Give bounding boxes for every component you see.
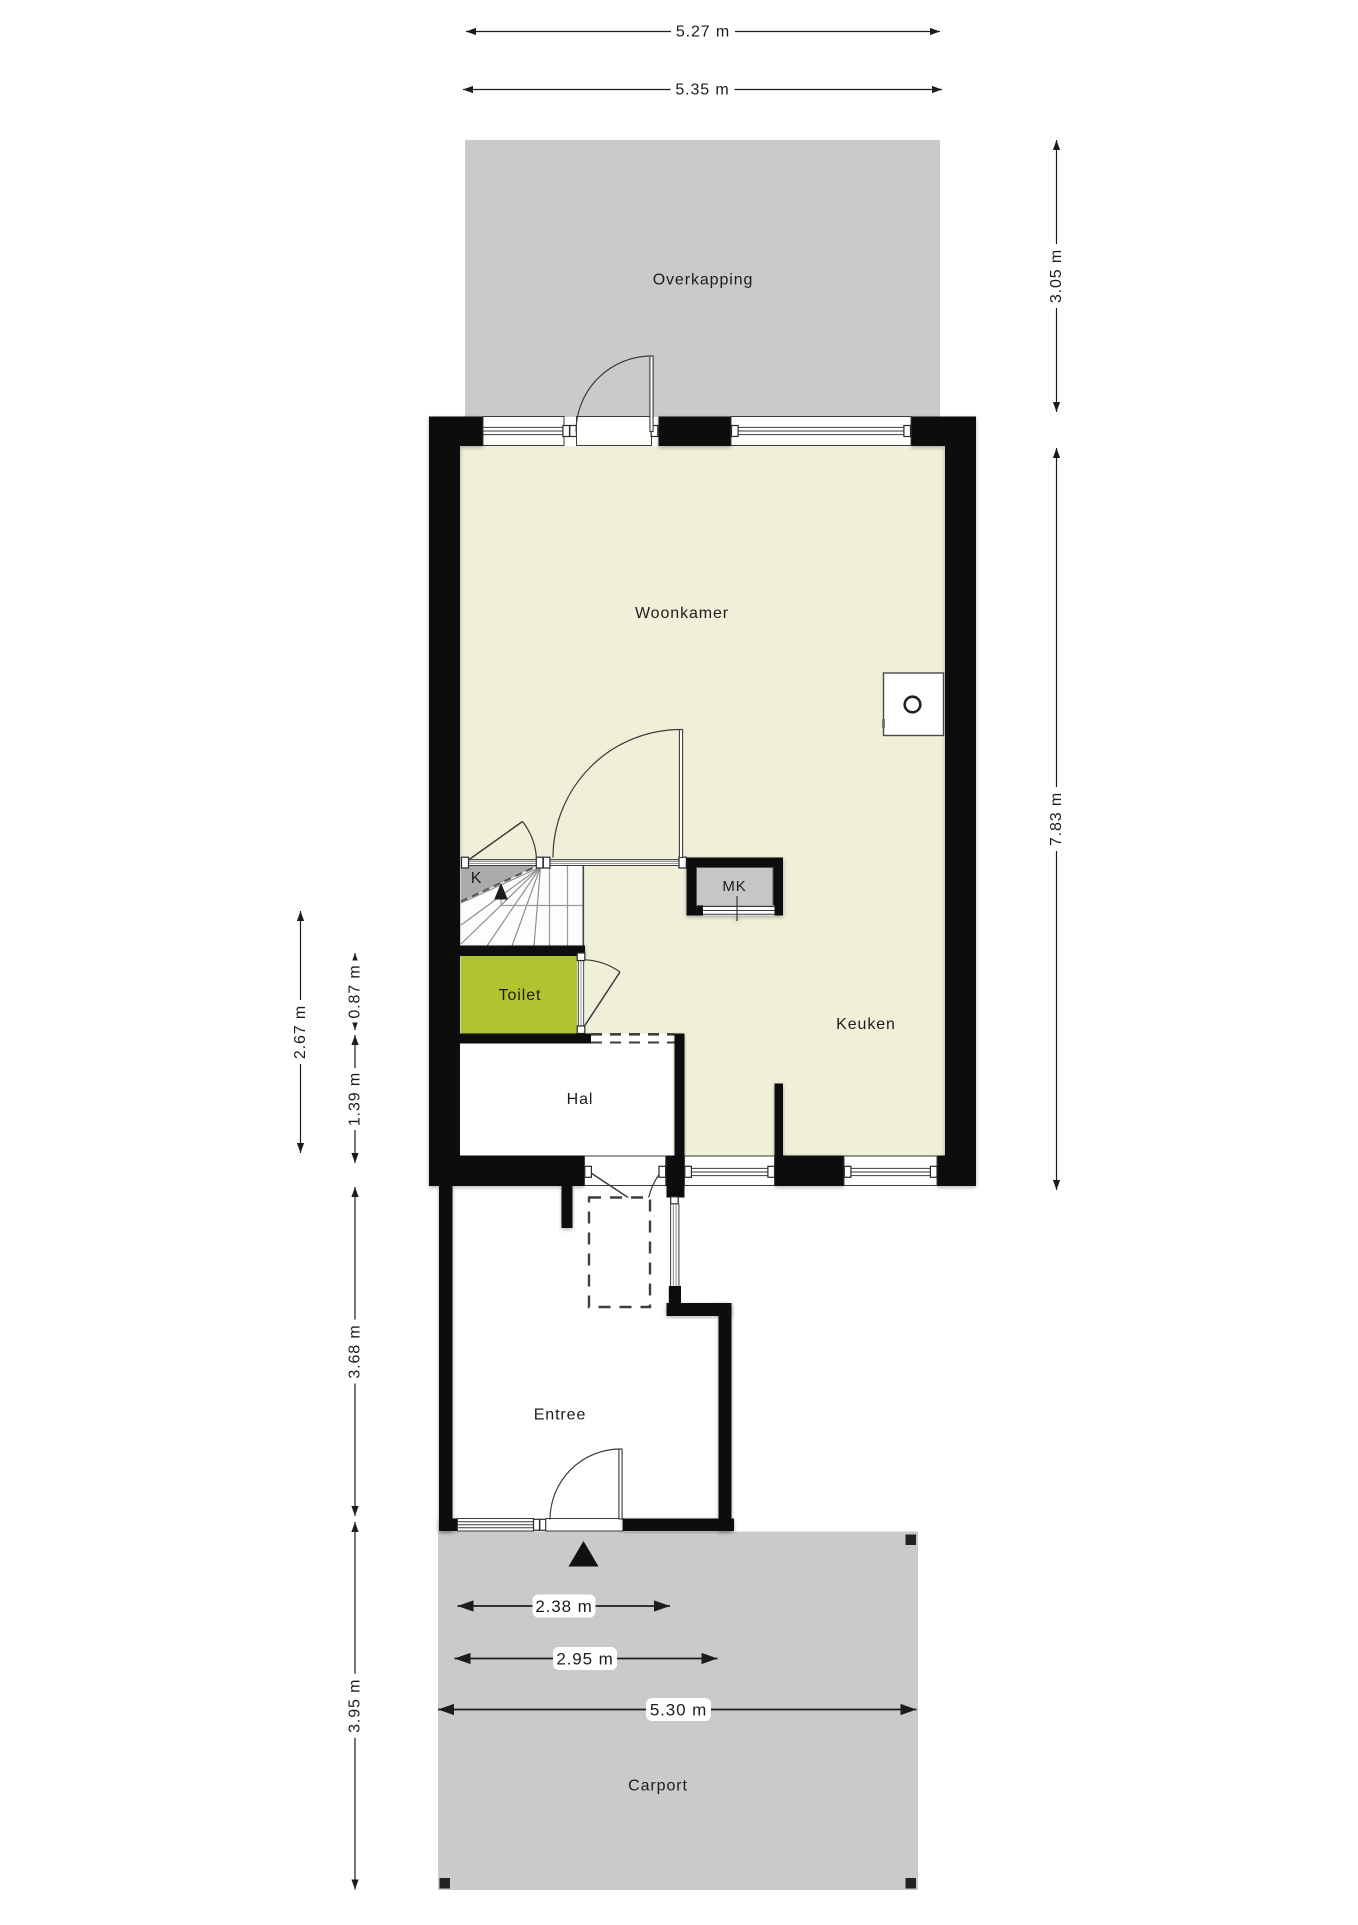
svg-text:Keuken: Keuken bbox=[836, 1016, 896, 1033]
svg-text:3.68 m: 3.68 m bbox=[347, 1324, 364, 1378]
svg-text:2.95 m: 2.95 m bbox=[556, 1650, 613, 1669]
svg-text:Hal: Hal bbox=[567, 1091, 594, 1108]
svg-text:5.35 m: 5.35 m bbox=[675, 82, 729, 99]
svg-text:1.39 m: 1.39 m bbox=[347, 1072, 364, 1126]
svg-text:3.95 m: 3.95 m bbox=[347, 1679, 364, 1733]
svg-text:3.05 m: 3.05 m bbox=[1048, 249, 1065, 303]
svg-text:0.87 m: 0.87 m bbox=[347, 964, 364, 1018]
svg-text:2.67 m: 2.67 m bbox=[292, 1005, 309, 1059]
svg-text:Entree: Entree bbox=[534, 1407, 587, 1424]
svg-text:Woonkamer: Woonkamer bbox=[635, 605, 729, 622]
svg-text:5.27 m: 5.27 m bbox=[676, 24, 730, 41]
svg-text:7.83 m: 7.83 m bbox=[1048, 792, 1065, 846]
svg-text:Toilet: Toilet bbox=[499, 987, 542, 1004]
svg-text:2.38 m: 2.38 m bbox=[535, 1597, 592, 1616]
svg-text:MK: MK bbox=[722, 878, 746, 895]
svg-text:Carport: Carport bbox=[628, 1778, 688, 1795]
svg-text:Overkapping: Overkapping bbox=[653, 272, 754, 289]
svg-text:5.30 m: 5.30 m bbox=[650, 1701, 707, 1720]
svg-text:K: K bbox=[471, 870, 483, 887]
